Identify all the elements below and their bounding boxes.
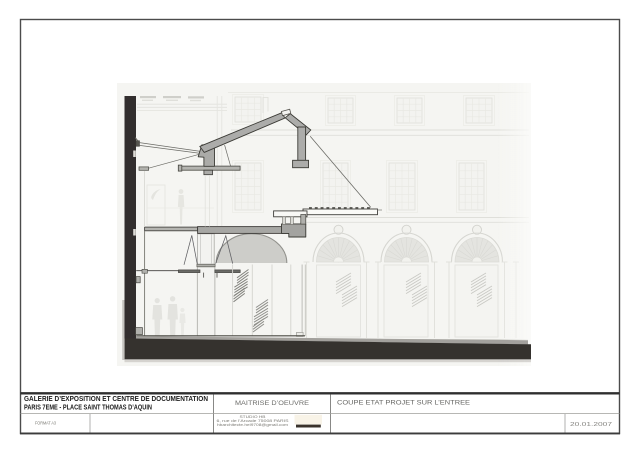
svg-text:20.01.2007: 20.01.2007 xyxy=(570,422,612,428)
svg-text:COUPE ETAT PROJET SUR L’ENTREE: COUPE ETAT PROJET SUR L’ENTREE xyxy=(337,400,470,407)
svg-text:hbarchitecte.hel9708@gmail.com: hbarchitecte.hel9708@gmail.com xyxy=(217,423,288,427)
svg-text:GALERIE D’EXPOSITION ET CENTR: GALERIE D’EXPOSITION ET CENTRE DE DOCUME… xyxy=(24,396,208,403)
svg-text:MAITRISE D’OEUVRE: MAITRISE D’OEUVRE xyxy=(235,400,310,407)
svg-text:PARIS 7EME - PLACE SAINT THOMA: PARIS 7EME - PLACE SAINT THOMAS D’AQUIN xyxy=(24,404,152,411)
svg-text:FORMAT A3: FORMAT A3 xyxy=(35,421,56,426)
